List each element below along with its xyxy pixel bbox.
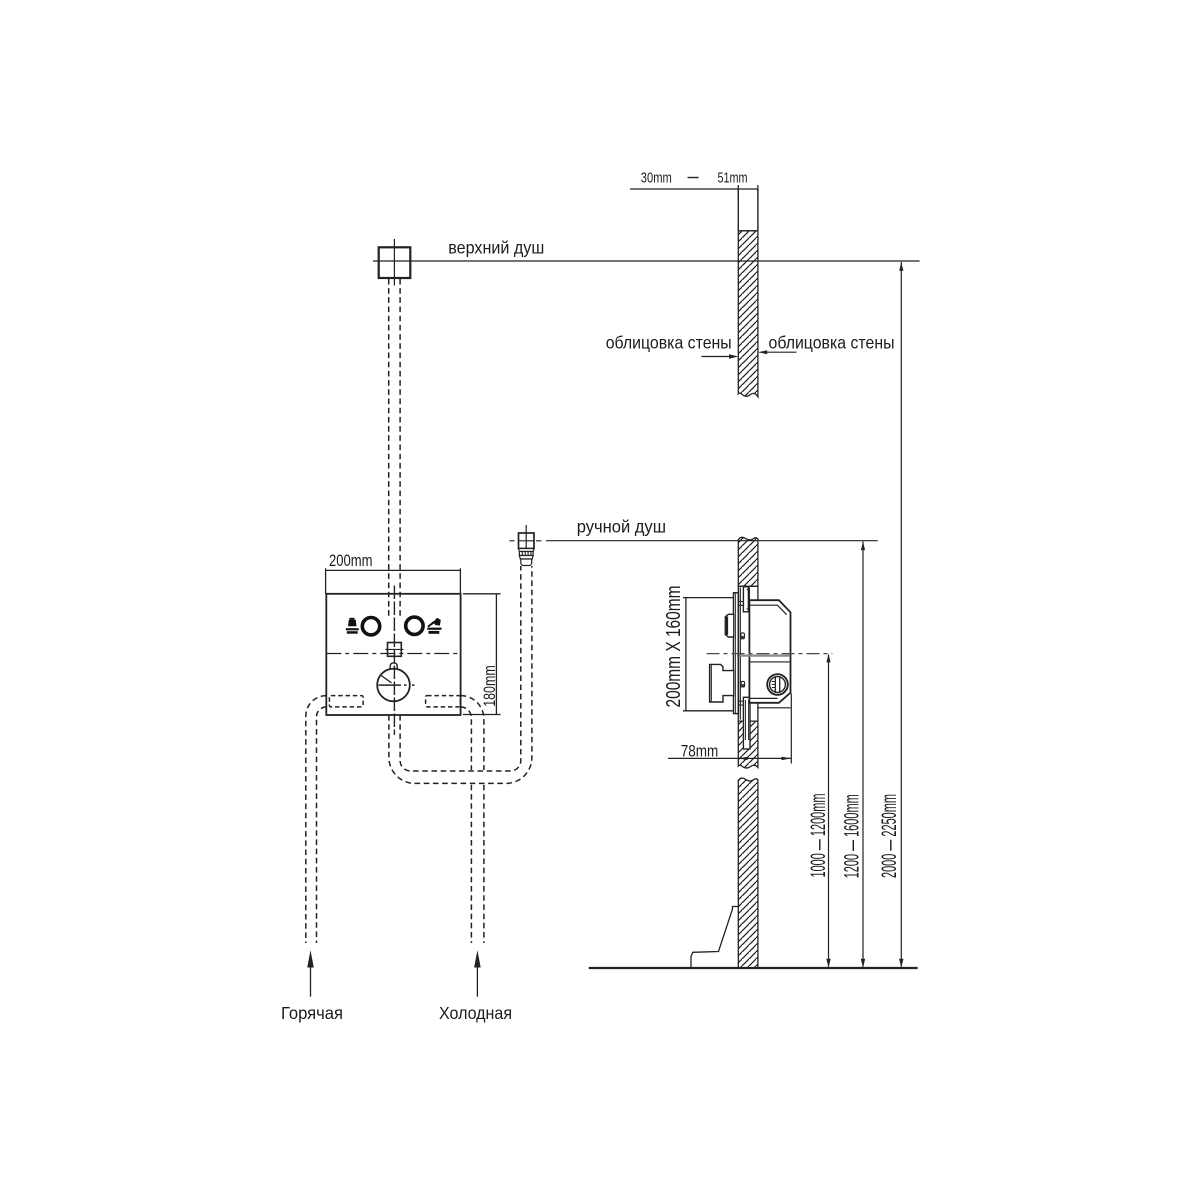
svg-text:200mm X 160mm: 200mm X 160mm <box>663 586 685 708</box>
svg-text:верхний душ: верхний душ <box>448 237 544 257</box>
svg-text:200mm: 200mm <box>329 552 373 570</box>
svg-text:облицовка стены: облицовка стены <box>769 333 895 353</box>
svg-text:1200 — 1600mm: 1200 — 1600mm <box>840 794 863 878</box>
svg-text:ручной душ: ручной душ <box>577 516 666 536</box>
svg-text:Холодная: Холодная <box>439 1003 512 1023</box>
svg-text:1000 — 1200mm: 1000 — 1200mm <box>807 794 830 878</box>
svg-text:51mm: 51mm <box>718 171 748 187</box>
svg-text:облицовка стены: облицовка стены <box>606 333 732 353</box>
svg-text:78mm: 78mm <box>681 743 719 761</box>
svg-text:30mm: 30mm <box>641 171 672 187</box>
svg-text:180mm: 180mm <box>480 665 499 707</box>
svg-text:Горячая: Горячая <box>281 1003 343 1023</box>
svg-text:2000 — 2250mm: 2000 — 2250mm <box>878 794 901 878</box>
